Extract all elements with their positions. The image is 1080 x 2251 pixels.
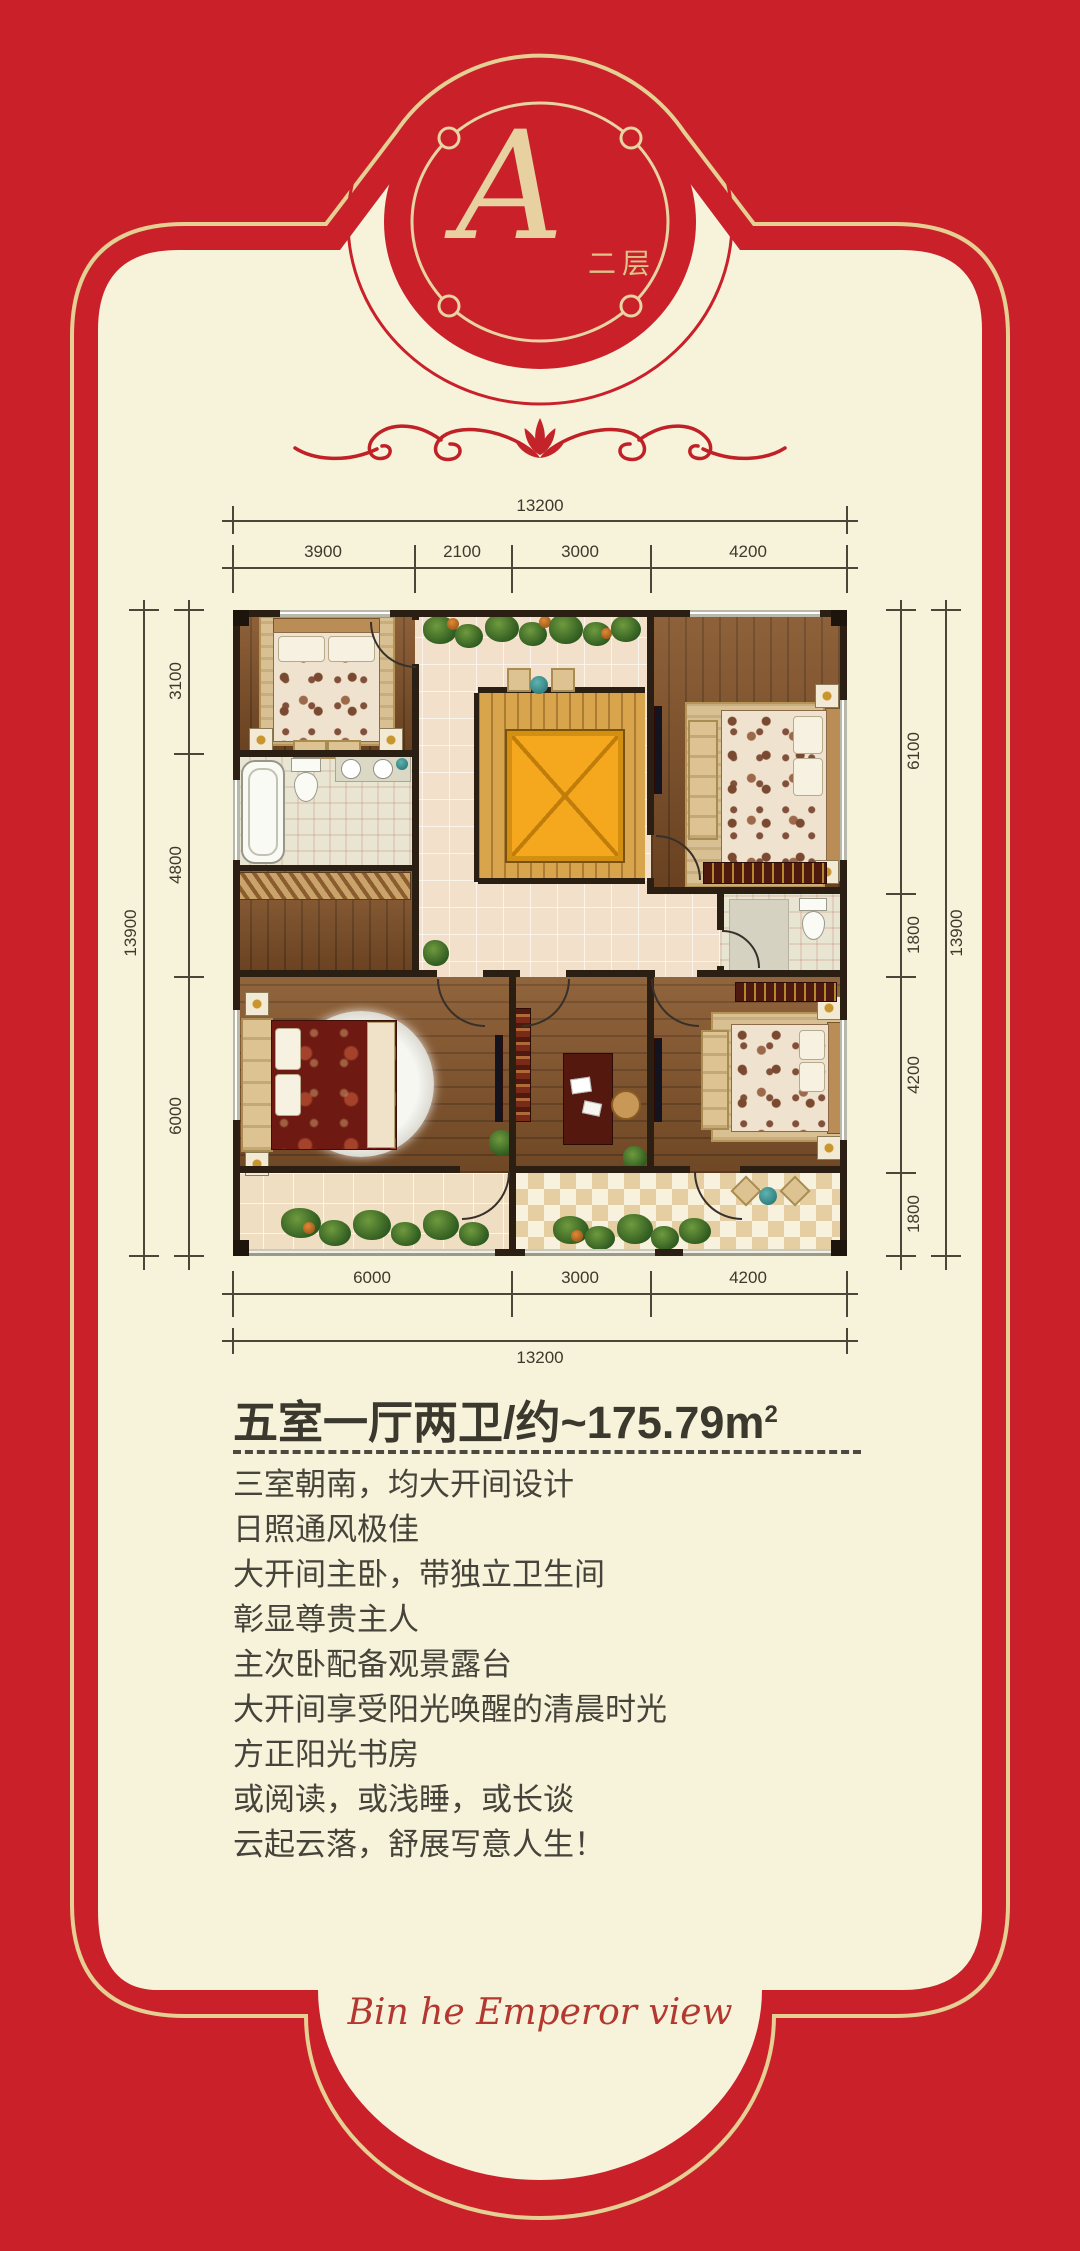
dimension-tick: [232, 506, 234, 534]
description-line: 日照通风极佳: [233, 1507, 873, 1552]
dimension-tick: [174, 976, 204, 978]
badge-letter: A: [420, 112, 600, 262]
window: [840, 700, 847, 860]
dimension-tick: [650, 545, 652, 593]
corner-pier: [233, 1240, 249, 1256]
dimension-label: 4800: [166, 825, 186, 905]
dimension-tick: [931, 1255, 961, 1257]
title-superscript: 2: [764, 1401, 777, 1428]
dimension-label: 1800: [904, 895, 924, 975]
dimension-tick: [129, 609, 159, 611]
description-line: 或阅读，或浅睡，或长谈: [233, 1777, 873, 1822]
description-line: 方正阳光书房: [233, 1732, 873, 1777]
dimension-tick: [232, 1271, 234, 1317]
description-line: 彰显尊贵主人: [233, 1597, 873, 1642]
description-line: 三室朝南，均大开间设计: [233, 1462, 873, 1507]
corner-pier: [233, 610, 249, 626]
dimension-label: 2100: [422, 542, 502, 562]
dimension-label: 4200: [708, 1268, 788, 1288]
dimension-label-top-overall: 13200: [500, 496, 580, 516]
dimension-tick: [650, 1271, 652, 1317]
dimension-line: [222, 1340, 858, 1342]
dimension-tick: [886, 976, 916, 978]
dimension-label-left-overall: 13900: [121, 893, 141, 973]
dimension-tick: [886, 609, 916, 611]
dimension-label: 3900: [283, 542, 363, 562]
dimension-tick: [174, 753, 204, 755]
dimension-line: [222, 520, 858, 522]
dimension-line: [222, 567, 858, 569]
dimension-line: [188, 600, 190, 1270]
dimension-tick: [129, 1255, 159, 1257]
dimension-label: 1800: [904, 1174, 924, 1254]
page-title: 五室一厅两卫/约~175.79m2: [233, 1386, 778, 1451]
dimension-tick: [414, 545, 416, 593]
window: [690, 610, 820, 617]
dimension-tick: [232, 1328, 234, 1354]
balcony-railing: [683, 1249, 831, 1256]
dimension-tick: [511, 1271, 513, 1317]
description-line: 云起云落，舒展写意人生！: [233, 1822, 873, 1867]
description-line: 主次卧配备观景露台: [233, 1642, 873, 1687]
dimension-label: 6000: [332, 1268, 412, 1288]
dimension-tick: [846, 506, 848, 534]
dimension-tick: [174, 1255, 204, 1257]
title-text: 五室一厅两卫/约~175.79m: [233, 1397, 764, 1448]
dimension-label-right-overall: 13900: [947, 893, 967, 973]
dimension-label-bottom-overall: 13200: [500, 1348, 580, 1368]
dimension-label: 4200: [708, 542, 788, 562]
dimension-line: [143, 600, 145, 1270]
exterior-wall: [233, 610, 847, 1256]
footer-script-text: Bin he Emperor view: [290, 1992, 790, 2033]
dimension-label: 6000: [166, 1076, 186, 1156]
dashed-divider: [233, 1450, 861, 1454]
floor-plan: [233, 610, 847, 1256]
dimension-label: 4200: [904, 1035, 924, 1115]
description-line: 大开间主卧，带独立卫生间: [233, 1552, 873, 1597]
dimension-label: 6100: [904, 711, 924, 791]
window: [233, 780, 240, 860]
dimension-tick: [232, 545, 234, 593]
dimension-line: [900, 600, 902, 1270]
dimension-label: 3000: [540, 1268, 620, 1288]
dimension-line: [222, 1293, 858, 1295]
balcony-railing: [249, 1249, 495, 1256]
window: [233, 1010, 240, 1120]
brochure-page: A 二层 13200 3900 2100 3000 4200 6000 3000…: [0, 0, 1080, 2251]
dimension-tick: [846, 1328, 848, 1354]
balcony-railing: [525, 1249, 655, 1256]
dimension-label: 3100: [166, 641, 186, 721]
dimension-tick: [886, 1255, 916, 1257]
corner-pier: [831, 610, 847, 626]
window: [280, 610, 390, 617]
dimension-tick: [174, 609, 204, 611]
dimension-label: 3000: [540, 542, 620, 562]
dimension-tick: [511, 545, 513, 593]
corner-pier: [831, 1240, 847, 1256]
window: [840, 1020, 847, 1140]
dimension-tick: [931, 609, 961, 611]
description-line: 大开间享受阳光唤醒的清晨时光: [233, 1687, 873, 1732]
floor-label: 二层: [588, 242, 656, 282]
dimension-tick: [846, 1271, 848, 1317]
dimension-tick: [846, 545, 848, 593]
